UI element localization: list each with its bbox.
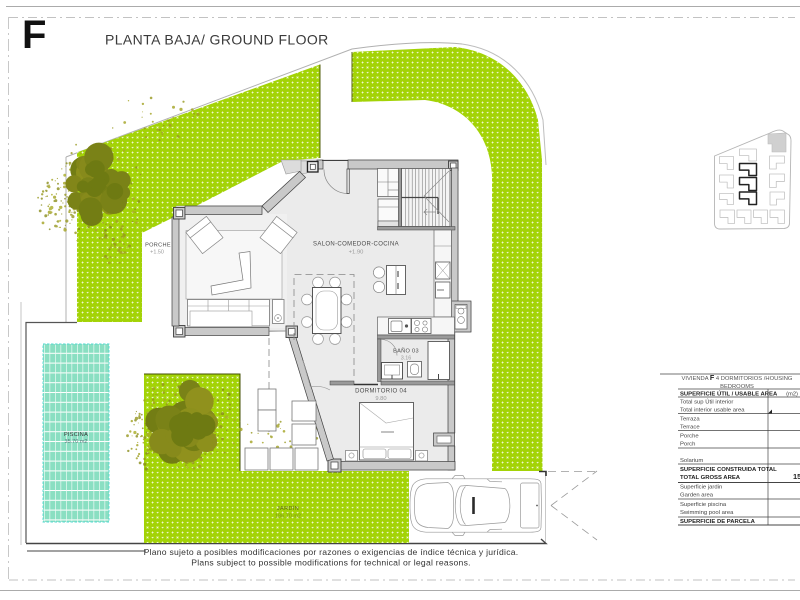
svg-text:+1.50: +1.50 bbox=[150, 250, 164, 256]
svg-text:TOTAL GROSS AREA: TOTAL GROSS AREA bbox=[680, 475, 741, 481]
svg-text:PORCHE: PORCHE bbox=[145, 243, 171, 249]
svg-text:Garden area: Garden area bbox=[680, 493, 714, 499]
svg-text:SUPERFICIE CONSTRUIDA TOTAL: SUPERFICIE CONSTRUIDA TOTAL bbox=[680, 467, 777, 473]
svg-text:SALON-COMEDOR-COCINA: SALON-COMEDOR-COCINA bbox=[313, 242, 399, 248]
svg-text:Total interior usable area: Total interior usable area bbox=[680, 408, 745, 414]
svg-text:Solarium: Solarium bbox=[680, 458, 703, 464]
svg-text:186.70 m2: 186.70 m2 bbox=[275, 514, 301, 520]
svg-text:Porch: Porch bbox=[680, 442, 695, 448]
svg-text:9.80: 9.80 bbox=[375, 396, 386, 402]
svg-text:SUPERFICIE DE PARCELA: SUPERFICIE DE PARCELA bbox=[680, 519, 756, 525]
svg-text:PISCINA: PISCINA bbox=[64, 432, 88, 438]
svg-text:Swimming pool area: Swimming pool area bbox=[680, 510, 734, 516]
svg-text:15: 15 bbox=[793, 472, 800, 481]
svg-text:(m2): (m2) bbox=[786, 392, 798, 398]
svg-text:Terraza: Terraza bbox=[680, 417, 700, 423]
svg-text:SUPERFICIE ÚTIL / USABLE AREA: SUPERFICIE ÚTIL / USABLE AREA bbox=[680, 391, 778, 398]
svg-text:PLANTA BAJA/ GROUND FLOOR: PLANTA BAJA/ GROUND FLOOR bbox=[105, 32, 329, 48]
svg-text:35.70 m2: 35.70 m2 bbox=[65, 439, 88, 445]
svg-text:Terrace: Terrace bbox=[680, 425, 700, 431]
svg-text:Plano sujeto a posibles modifi: Plano sujeto a posibles modificaciones p… bbox=[144, 547, 519, 557]
svg-text:Superficie piscina: Superficie piscina bbox=[680, 502, 727, 508]
svg-text:F: F bbox=[22, 13, 46, 57]
svg-text:DORMITORIO 04: DORMITORIO 04 bbox=[355, 389, 407, 395]
svg-text:JARDÍN: JARDÍN bbox=[277, 505, 299, 512]
svg-text:3.16: 3.16 bbox=[401, 356, 412, 362]
svg-text:Plans subject to possible modi: Plans subject to possible modifications … bbox=[191, 558, 471, 568]
svg-text:Superficie jardin: Superficie jardin bbox=[680, 485, 722, 491]
svg-text:Total sup Útil interior: Total sup Útil interior bbox=[680, 399, 733, 406]
svg-text:+1.90: +1.90 bbox=[349, 250, 364, 256]
svg-text:Porche: Porche bbox=[680, 434, 699, 440]
